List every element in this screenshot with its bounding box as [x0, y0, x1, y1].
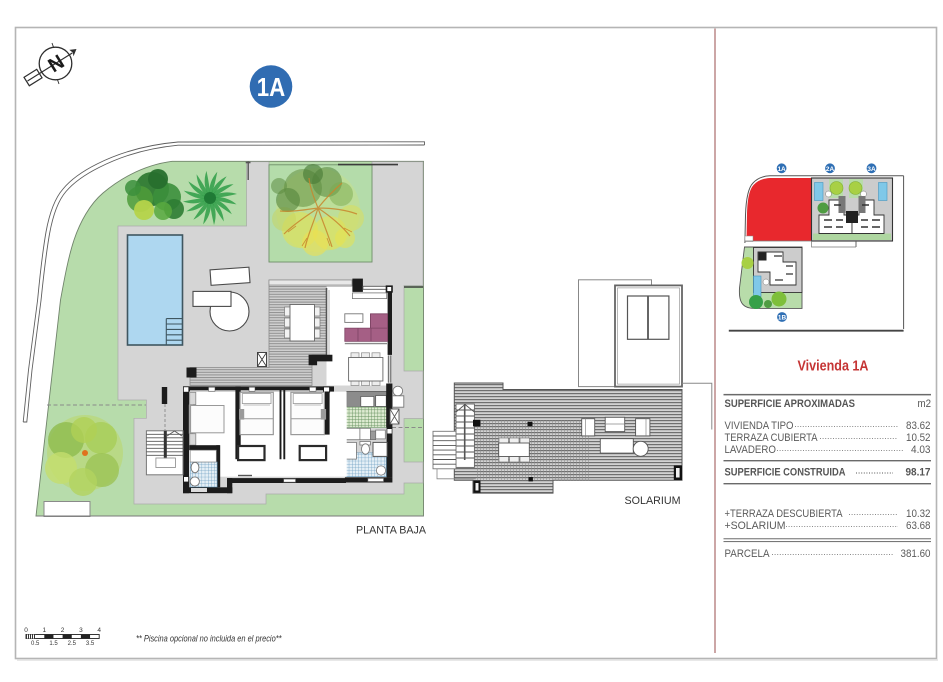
svg-text:LAVADERO: LAVADERO	[725, 444, 777, 456]
svg-text:2A: 2A	[826, 166, 835, 173]
svg-text:1A: 1A	[778, 166, 787, 173]
svg-text:381.60: 381.60	[901, 548, 931, 560]
svg-text:0: 0	[24, 627, 28, 634]
svg-text:4: 4	[97, 627, 101, 634]
svg-text:10.52: 10.52	[906, 432, 931, 444]
svg-text:63.68: 63.68	[906, 520, 931, 532]
svg-text:4.03: 4.03	[911, 444, 931, 456]
svg-text:Vivienda 1A: Vivienda 1A	[798, 359, 869, 375]
svg-text:1: 1	[42, 627, 46, 634]
svg-text:3: 3	[79, 627, 83, 634]
svg-text:2.5: 2.5	[68, 641, 77, 647]
svg-text:** Piscina opcional no incluid: ** Piscina opcional no incluida en el pr…	[136, 634, 282, 644]
svg-text:10.32: 10.32	[906, 508, 931, 520]
svg-text:SUPERFICIE CONSTRUIDA: SUPERFICIE CONSTRUIDA	[725, 467, 846, 479]
svg-text:PARCELA: PARCELA	[725, 548, 771, 560]
svg-text:0.5: 0.5	[31, 641, 40, 647]
svg-text:SUPERFICIE APROXIMADAS: SUPERFICIE APROXIMADAS	[725, 398, 856, 410]
svg-text:VIVIENDA TIPO: VIVIENDA TIPO	[725, 420, 794, 432]
svg-text:83.62: 83.62	[906, 420, 931, 432]
svg-text:3.5: 3.5	[86, 641, 95, 647]
svg-text:2: 2	[61, 627, 65, 634]
svg-text:+SOLARIUM: +SOLARIUM	[725, 520, 786, 532]
svg-text:PLANTA BAJA: PLANTA BAJA	[356, 525, 426, 537]
svg-text:98.17: 98.17	[906, 467, 931, 479]
svg-text:1A: 1A	[257, 72, 286, 102]
svg-text:m2: m2	[918, 398, 932, 410]
svg-text:1.5: 1.5	[49, 641, 58, 647]
svg-text:SOLARIUM: SOLARIUM	[625, 495, 681, 507]
svg-text:+TERRAZA DESCUBIERTA: +TERRAZA DESCUBIERTA	[725, 508, 844, 520]
svg-text:1B: 1B	[778, 315, 787, 322]
svg-text:TERRAZA CUBIERTA: TERRAZA CUBIERTA	[725, 432, 819, 444]
svg-text:3A: 3A	[867, 166, 876, 173]
